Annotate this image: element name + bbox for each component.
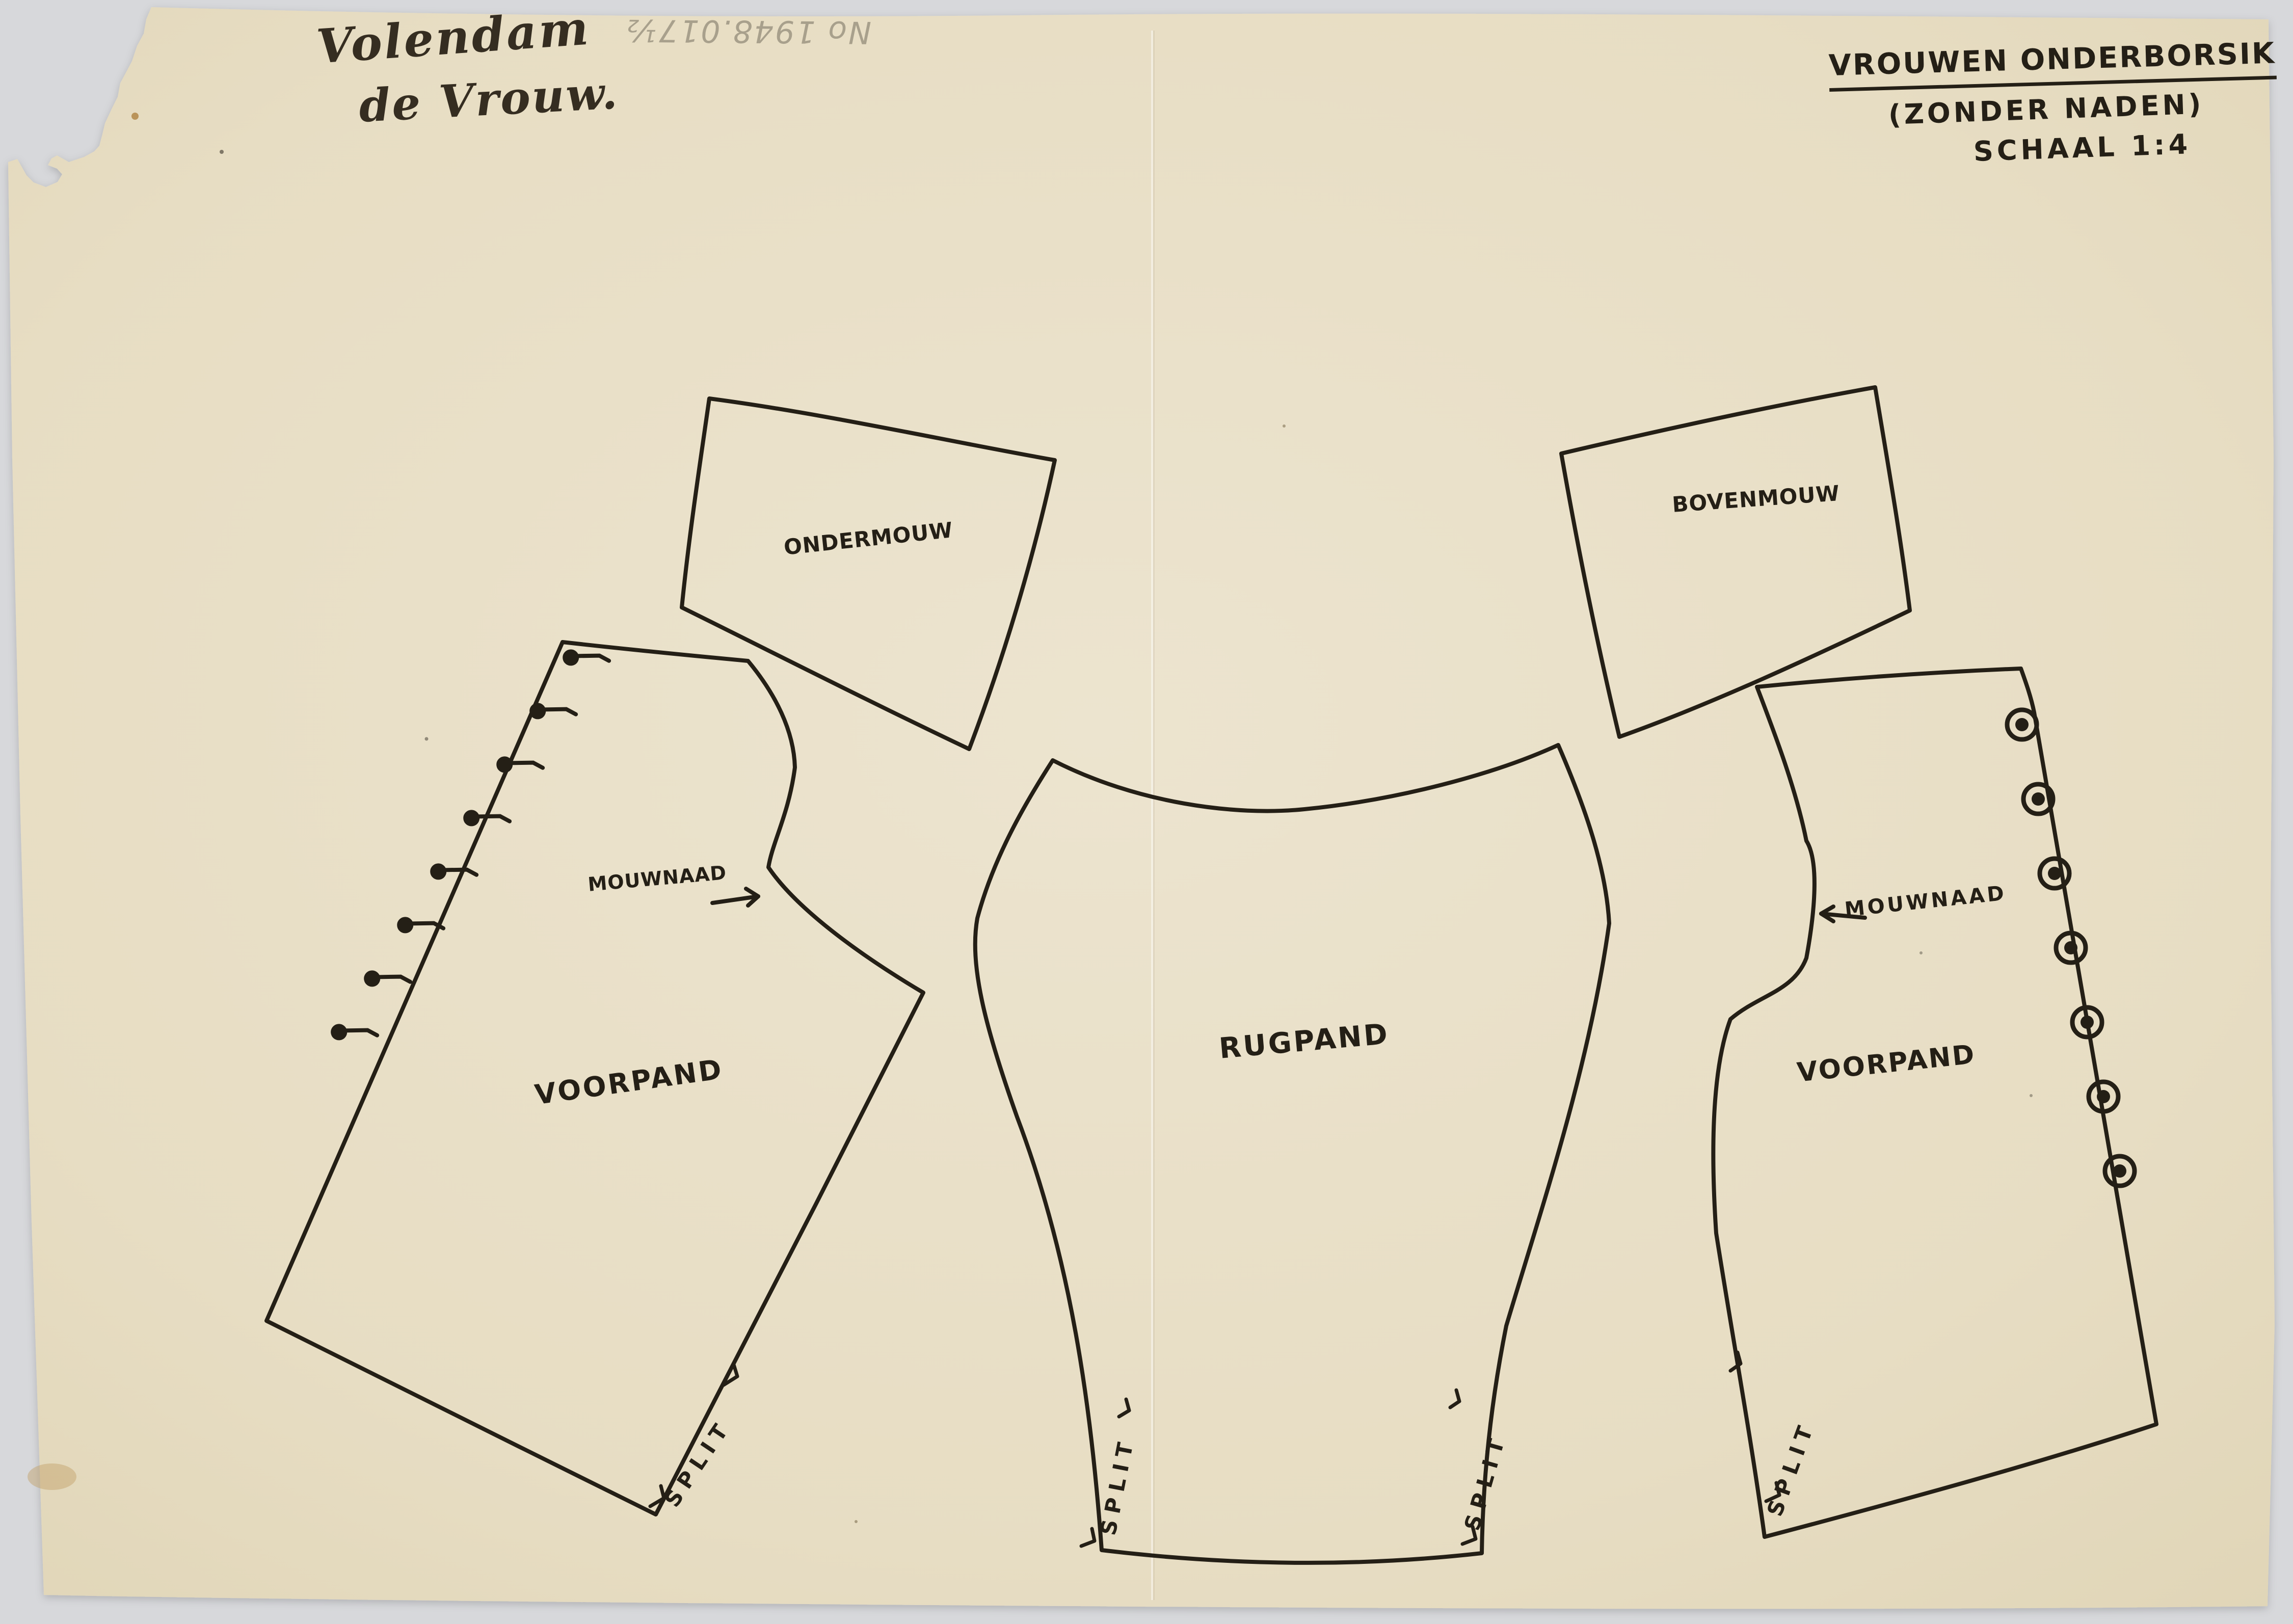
title-line3: SCHAAL 1:4 (1973, 129, 2192, 167)
scanned-sewing-pattern-sheet: Volendam de Vrouw. No 1948.017½ VROUWEN … (0, 0, 2293, 1624)
pencil-inventory-note: No 1948.017½ (627, 13, 872, 49)
paper-sheet (8, 7, 2275, 1609)
pattern-diagram (0, 0, 2293, 1624)
fold-crease (1151, 31, 1155, 1600)
